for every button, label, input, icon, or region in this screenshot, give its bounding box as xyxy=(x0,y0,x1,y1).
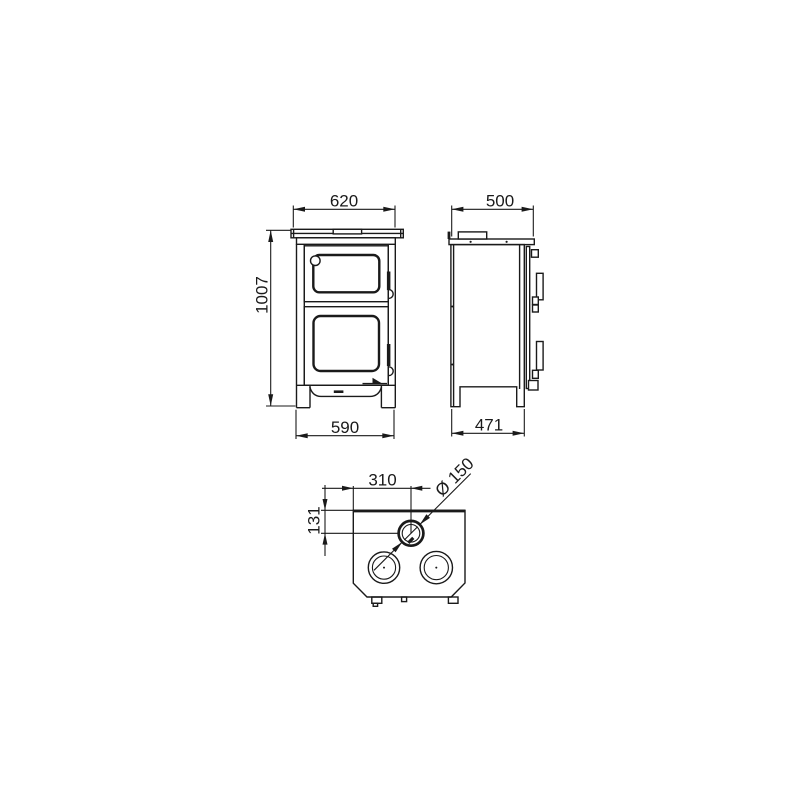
lower-door-handle-hook xyxy=(389,367,393,376)
top-view xyxy=(353,510,465,606)
lower-door xyxy=(304,307,393,386)
dimension-base-depth-471: 471 xyxy=(452,409,525,437)
side-body-outline xyxy=(451,245,524,407)
hotplate-right xyxy=(420,551,452,583)
stove-three-view-drawing: 620 1007 590 xyxy=(0,0,800,800)
front-edge-fittings xyxy=(372,597,458,606)
dimension-top-width-620: 620 xyxy=(293,191,395,227)
arrowhead xyxy=(293,207,305,212)
dimension-base-width-590: 590 xyxy=(296,410,394,439)
arrowhead xyxy=(383,207,395,212)
arrowhead xyxy=(382,433,394,438)
arrowhead xyxy=(411,486,422,491)
side-view xyxy=(448,232,543,407)
side-top-plate xyxy=(449,239,534,245)
front-top-width-label: 620 xyxy=(330,191,358,210)
side-depth-label: 500 xyxy=(486,191,514,210)
dimension-height-1007: 1007 xyxy=(253,230,296,406)
lower-door-window xyxy=(314,316,380,371)
dimension-depth-500: 500 xyxy=(452,191,534,236)
hotplate-left xyxy=(368,552,399,583)
air-control-lever xyxy=(373,378,383,384)
top-flue-y-label: 131 xyxy=(305,506,324,534)
stove-technical-drawing-page: 620 1007 590 xyxy=(0,0,800,800)
front-bottom-lip xyxy=(310,387,382,397)
arrowhead xyxy=(268,394,273,406)
arrowhead xyxy=(268,230,273,242)
side-hinge-hardware xyxy=(529,250,544,390)
front-view xyxy=(291,229,403,407)
side-base-depth-label: 471 xyxy=(475,415,503,434)
top-flue-x-label: 310 xyxy=(368,470,396,489)
arrowhead xyxy=(522,207,534,212)
upper-door-handle-hook xyxy=(389,290,393,299)
arrowhead xyxy=(342,486,353,491)
flue-diameter-label: Ø 150 xyxy=(432,454,478,500)
upper-door-window xyxy=(313,255,379,292)
arrowhead xyxy=(452,207,464,212)
arrowhead xyxy=(452,431,464,436)
front-height-label: 1007 xyxy=(253,276,272,314)
upper-door xyxy=(304,246,393,302)
upper-door-knob xyxy=(311,256,321,266)
top-plate-handle-notch xyxy=(333,229,361,234)
upper-door-latch xyxy=(387,272,391,291)
plate-back-lip xyxy=(448,232,451,239)
bottom-lip-mark xyxy=(334,390,344,393)
side-door-panel xyxy=(526,247,529,389)
plate-support-band xyxy=(297,238,396,245)
side-flue-collar xyxy=(458,232,486,239)
arrowhead xyxy=(513,431,525,436)
dimension-flue-offset-131: 131 xyxy=(305,485,399,556)
arrowhead xyxy=(296,433,308,438)
lower-door-latch xyxy=(387,344,391,366)
front-base-width-label: 590 xyxy=(331,418,359,437)
